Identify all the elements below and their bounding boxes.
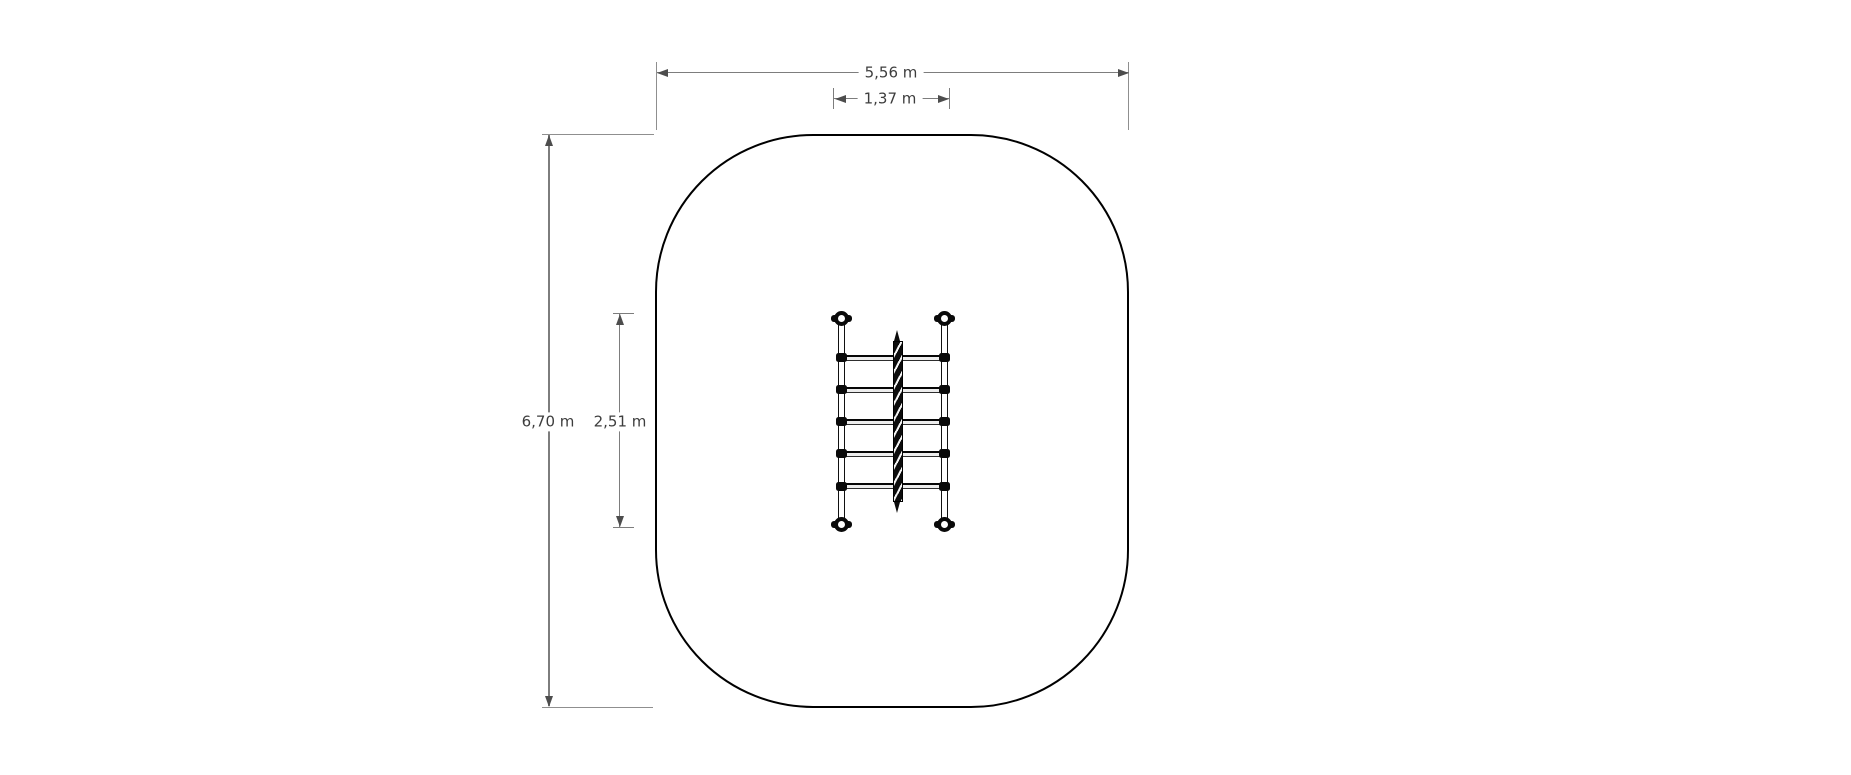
post-ring — [937, 517, 952, 532]
rung-connector — [836, 353, 847, 362]
rung-connector — [836, 417, 847, 426]
plan-view-canvas: 5,56 m 1,37 m 6,70 m 2,51 m — [0, 0, 1851, 775]
rung-connector — [939, 353, 950, 362]
dim-tick — [949, 88, 950, 109]
dim-label-area-length: 6,70 m — [516, 412, 581, 431]
rung-connector — [836, 449, 847, 458]
rung-connector — [836, 385, 847, 394]
dim-tick — [613, 527, 634, 528]
dim-arrow-up-icon — [616, 314, 624, 325]
rung-connector — [836, 482, 847, 491]
dim-arrow-down-icon — [616, 516, 624, 527]
dim-arrow-left-icon — [835, 95, 846, 103]
pole-tip-icon — [894, 502, 900, 513]
extension-line — [542, 134, 654, 135]
rung-connector — [939, 417, 950, 426]
dim-label-equipment-length: 2,51 m — [588, 412, 653, 431]
spiral-pole — [893, 341, 903, 502]
dim-label-equipment-width: 1,37 m — [858, 89, 923, 108]
dim-arrow-right-icon — [938, 95, 949, 103]
dim-arrow-right-icon — [1118, 69, 1129, 77]
rung-connector — [939, 482, 950, 491]
rung-connector — [939, 385, 950, 394]
rung-connector — [939, 449, 950, 458]
dim-arrow-down-icon — [545, 696, 553, 707]
post-ring — [937, 311, 952, 326]
dim-arrow-left-icon — [657, 69, 668, 77]
dim-label-area-width: 5,56 m — [859, 63, 924, 82]
dim-arrow-up-icon — [545, 135, 553, 146]
pole-tip-icon — [894, 330, 900, 341]
extension-line — [542, 707, 653, 708]
